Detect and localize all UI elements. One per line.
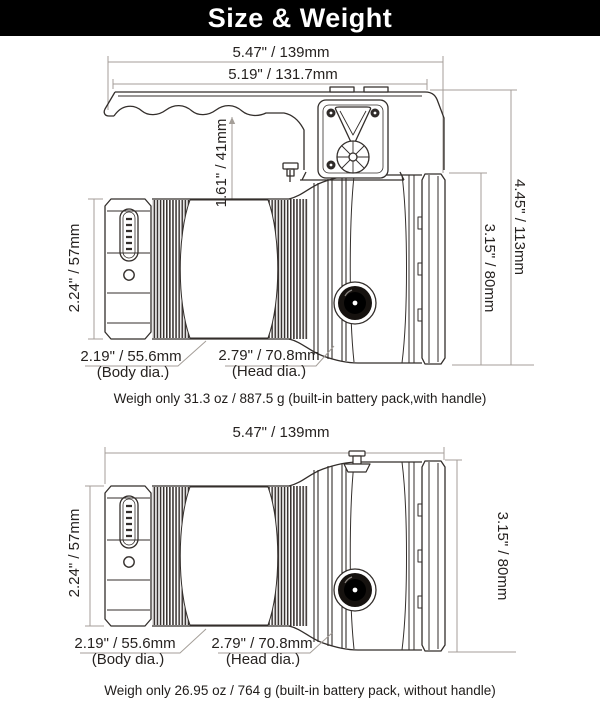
size-weight-infographic: Size & Weight <box>0 0 600 709</box>
thumb-screw <box>283 163 298 182</box>
carry-handle <box>104 87 444 182</box>
flashlight-with-handle <box>104 87 445 364</box>
head-diameter-label: 2.79" / 70.8mm <box>162 636 362 652</box>
overall-height-label: 4.45" / 113mm <box>511 167 527 287</box>
head-height-label: 3.15" / 80mm <box>481 213 497 323</box>
handle-length-label: 5.19" / 131.7mm <box>183 67 383 83</box>
weight-note-without-handle: Weigh only 26.95 oz / 764 g (built-in ba… <box>0 683 600 698</box>
body-height-label: 2.24" / 57mm <box>67 498 83 608</box>
handle-mount-plate <box>318 100 388 178</box>
head-diameter-caption: (Head dia.) <box>169 364 369 380</box>
head-height-label: 3.15" / 80mm <box>494 501 510 611</box>
weight-note-with-handle: Weigh only 31.3 oz / 887.5 g (built-in b… <box>0 391 600 406</box>
head-diameter-caption: (Head dia.) <box>163 652 363 668</box>
head-diameter-label: 2.79" / 70.8mm <box>169 348 369 364</box>
flashlight-without-handle <box>105 451 445 651</box>
body-height-label: 2.24" / 57mm <box>67 213 83 323</box>
handle-clearance-label: 1.61" / 41mm <box>214 108 230 218</box>
overall-length-label: 5.47" / 139mm <box>181 425 381 441</box>
overall-length-label: 5.47" / 139mm <box>181 45 381 61</box>
